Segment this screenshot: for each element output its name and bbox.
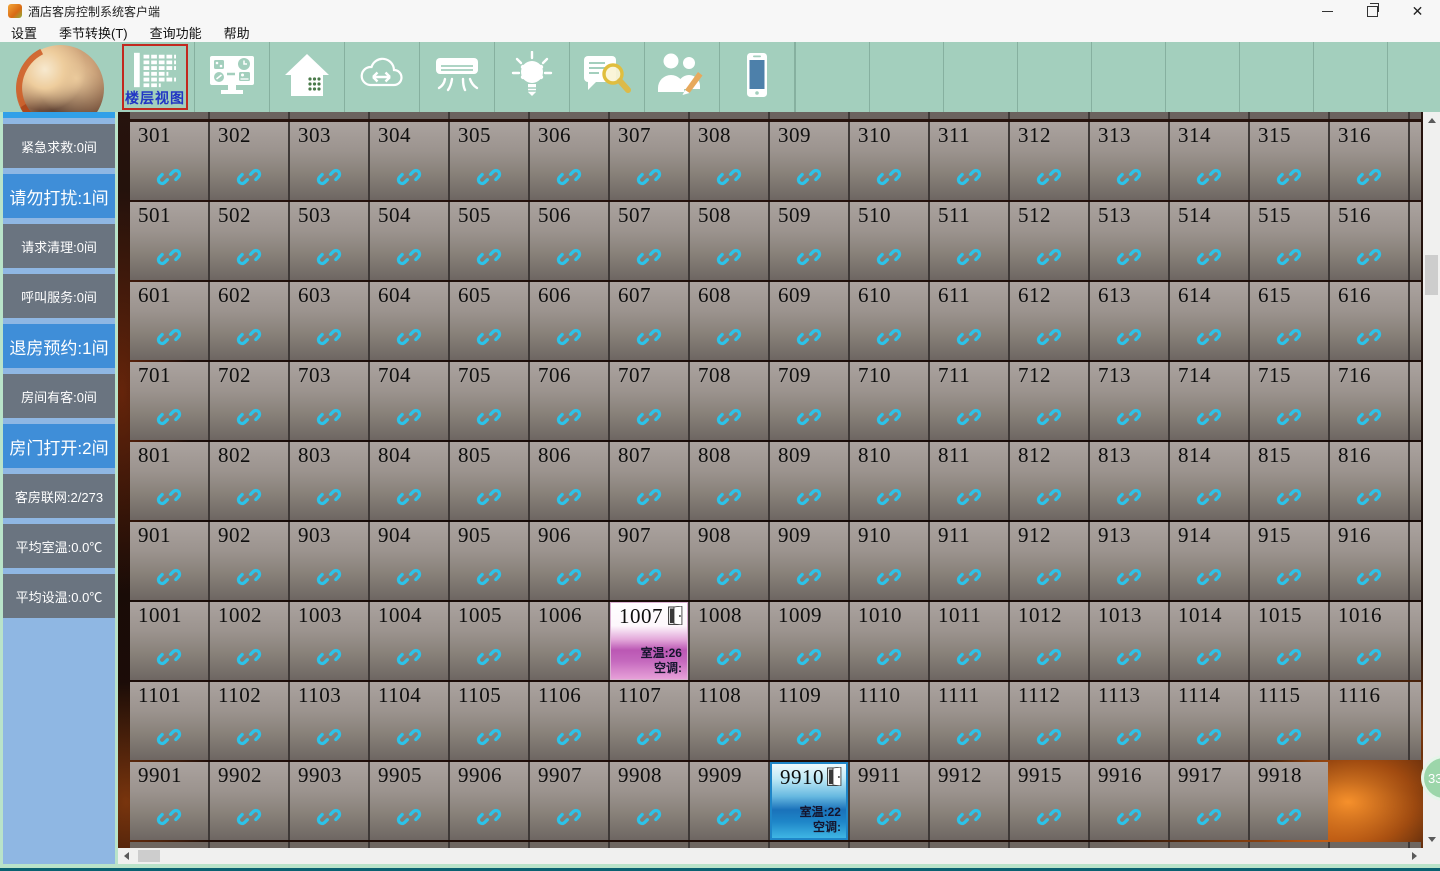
room-temp-label: 室温:26 [641,646,682,661]
room-cell[interactable]: 815 [1250,442,1328,520]
room-cell[interactable]: 512 [1010,202,1088,280]
room-number: 510 [858,203,891,228]
restore-button[interactable] [1350,0,1395,22]
vertical-scrollbar[interactable] [1423,112,1440,848]
room-cell[interactable]: 313 [1090,122,1168,200]
room-cell[interactable]: 502 [210,202,288,280]
room-cell[interactable]: 808 [690,442,768,520]
room-cell[interactable]: 701 [130,362,208,440]
room-number: 802 [218,443,251,468]
room-cell[interactable]: 802 [210,442,288,520]
sidebar-status-item[interactable]: 请求清理:0间 [3,224,115,268]
sidebar-status-item[interactable]: 房间有客:0间 [3,374,115,418]
room-cell[interactable]: 913 [1090,522,1168,600]
room-cell[interactable]: 915 [1250,522,1328,600]
room-number: 9901 [138,763,182,788]
room-cell[interactable]: 9906 [450,762,528,840]
toolbar-button-floor-view[interactable]: 楼层视图 [120,42,195,112]
room-cell[interactable]: 9910室温:22空调: [770,762,848,840]
room-cell[interactable]: 705 [450,362,528,440]
link-icon [236,564,262,590]
link-icon [556,804,582,830]
link-icon [236,644,262,670]
room-cell[interactable]: 714 [1170,362,1248,440]
room-cell[interactable]: 507 [610,202,688,280]
toolbar-button-staff[interactable] [645,42,720,112]
link-icon [396,804,422,830]
room-cell[interactable]: 1116 [1330,682,1408,760]
room-cell[interactable]: 610 [850,282,928,360]
room-cell[interactable]: 302 [210,122,288,200]
room-cell[interactable]: 316 [1330,122,1408,200]
room-cell[interactable]: 607 [610,282,688,360]
room-cell[interactable]: 811 [930,442,1008,520]
link-icon [1276,644,1302,670]
room-cell[interactable]: 514 [1170,202,1248,280]
room-cell[interactable]: 9902 [210,762,288,840]
app-window: 酒店客房控制系统客户端 ✕ 设置季节转换(T)查询功能帮助 [0,0,1440,871]
room-number: 1102 [218,683,261,708]
room-cell[interactable]: 301 [130,122,208,200]
room-cell[interactable]: 803 [290,442,368,520]
room-cell[interactable]: 914 [1170,522,1248,600]
link-icon [396,164,422,190]
room-cell[interactable]: 916 [1330,522,1408,600]
link-icon [1276,164,1302,190]
toolbar-button-air-conditioner[interactable] [420,42,495,112]
link-icon [156,164,182,190]
room-cell-partial [1410,362,1421,440]
room-number: 702 [218,363,251,388]
room-cell[interactable]: 906 [530,522,608,600]
room-number: 1108 [698,683,741,708]
room-cell[interactable]: 1006 [530,602,608,680]
room-cell[interactable]: 904 [370,522,448,600]
link-icon [396,484,422,510]
link-icon [1276,804,1302,830]
room-number: 1004 [378,603,422,628]
room-cell[interactable]: 504 [370,202,448,280]
horizontal-scroll-thumb[interactable] [138,850,160,862]
room-number: 303 [298,123,331,148]
scroll-down-arrow[interactable] [1423,831,1440,848]
room-cell[interactable]: 813 [1090,442,1168,520]
room-cell[interactable]: 710 [850,362,928,440]
room-number: 9903 [298,763,342,788]
room-cell[interactable]: 912 [1010,522,1088,600]
grid-top-sliver-row [130,112,1421,119]
room-cell-sliver [210,112,288,119]
room-number: 9912 [938,763,982,788]
scroll-right-arrow[interactable] [1406,848,1423,864]
link-icon [1036,724,1062,750]
room-cell[interactable]: 1115 [1250,682,1328,760]
link-icon [1356,324,1382,350]
room-cell[interactable]: 702 [210,362,288,440]
room-cell[interactable]: 704 [370,362,448,440]
room-ac-label: 空调: [800,820,841,835]
room-cell[interactable]: 1113 [1090,682,1168,760]
room-cell[interactable]: 807 [610,442,688,520]
close-button[interactable]: ✕ [1395,0,1440,22]
link-icon [156,724,182,750]
room-number: 505 [458,203,491,228]
room-cell[interactable]: 508 [690,202,768,280]
link-icon [236,244,262,270]
sidebar-status-item[interactable]: 紧急求救:0间 [3,124,115,168]
room-cell[interactable]: 1004 [370,602,448,680]
room-cell[interactable]: 503 [290,202,368,280]
room-cell[interactable]: 611 [930,282,1008,360]
sidebar-status-item[interactable]: 退房预约:1间 [3,324,115,368]
room-cell[interactable]: 305 [450,122,528,200]
restore-icon [1367,6,1378,17]
room-number: 813 [1098,443,1131,468]
toolbar-button-query[interactable] [570,42,645,112]
room-cell[interactable]: 810 [850,442,928,520]
room-cell[interactable]: 515 [1250,202,1328,280]
room-number: 9910 [780,765,824,790]
room-number: 1113 [1098,683,1140,708]
room-cell[interactable]: 1101 [130,682,208,760]
room-cell-sliver [130,112,208,119]
room-cell[interactable]: 505 [450,202,528,280]
room-cell[interactable]: 901 [130,522,208,600]
room-cell[interactable]: 809 [770,442,848,520]
sidebar-status-item[interactable]: 平均设温:0.0℃ [3,574,115,618]
message-search-icon [582,52,632,103]
room-cell[interactable]: 616 [1330,282,1408,360]
room-number: 507 [618,203,651,228]
room-number: 9918 [1258,763,1302,788]
room-number: 603 [298,283,331,308]
room-cell[interactable]: 712 [1010,362,1088,440]
room-cell[interactable]: 9908 [610,762,688,840]
room-cell[interactable]: 1107 [610,682,688,760]
link-icon [716,324,742,350]
room-cell[interactable]: 1003 [290,602,368,680]
sidebar-status-item[interactable]: 房门打开:2间 [3,424,115,468]
link-icon [316,324,342,350]
room-cell[interactable]: 615 [1250,282,1328,360]
room-cell[interactable]: 608 [690,282,768,360]
room-number: 1114 [1178,683,1220,708]
room-number: 912 [1018,523,1051,548]
room-cell[interactable]: 1111 [930,682,1008,760]
sidebar-status-item[interactable]: 呼叫服务:0间 [3,274,115,318]
room-cell[interactable]: 613 [1090,282,1168,360]
room-cell[interactable]: 706 [530,362,608,440]
room-number: 606 [538,283,571,308]
link-icon [1356,644,1382,670]
room-number: 1106 [538,683,581,708]
link-icon [316,484,342,510]
app-icon [8,4,22,18]
horizontal-scrollbar[interactable] [118,848,1423,864]
room-number: 812 [1018,443,1051,468]
room-cell[interactable]: 707 [610,362,688,440]
room-cell[interactable]: 1001 [130,602,208,680]
room-cell[interactable]: 9911 [850,762,928,840]
room-number: 806 [538,443,571,468]
floor-view-label: 楼层视图 [124,88,186,108]
room-cell[interactable]: 1106 [530,682,608,760]
room-cell[interactable]: 1109 [770,682,848,760]
room-cell[interactable]: 612 [1010,282,1088,360]
room-number: 701 [138,363,171,388]
room-cell[interactable]: 1016 [1330,602,1408,680]
room-cell[interactable]: 310 [850,122,928,200]
room-cell[interactable]: 907 [610,522,688,600]
room-cell[interactable]: 1008 [690,602,768,680]
room-cell[interactable]: 1104 [370,682,448,760]
room-number: 915 [1258,523,1291,548]
room-number: 1010 [858,603,902,628]
room-cell[interactable]: 1114 [1170,682,1248,760]
room-number: 803 [298,443,331,468]
sidebar-status-item[interactable]: 平均室温:0.0℃ [3,524,115,568]
link-icon [236,724,262,750]
room-cell-sliver [610,112,688,119]
link-icon [1196,324,1222,350]
room-cell[interactable]: 516 [1330,202,1408,280]
room-row: 3013023033043053063073083093103113123133… [130,122,1421,200]
room-cell[interactable]: 510 [850,202,928,280]
room-cell[interactable]: 709 [770,362,848,440]
room-cell[interactable]: 9917 [1170,762,1248,840]
room-cell[interactable]: 804 [370,442,448,520]
room-cell[interactable]: 903 [290,522,368,600]
link-icon [1356,164,1382,190]
menu-item-帮助[interactable]: 帮助 [213,22,261,42]
link-icon [1356,484,1382,510]
room-cell[interactable]: 1110 [850,682,928,760]
room-cell[interactable]: 509 [770,202,848,280]
room-cell[interactable]: 309 [770,122,848,200]
link-icon [1036,484,1062,510]
room-number: 9909 [698,763,742,788]
room-number: 508 [698,203,731,228]
room-cell[interactable]: 715 [1250,362,1328,440]
room-number: 504 [378,203,411,228]
room-cell-partial [1410,522,1421,600]
room-cell[interactable]: 311 [930,122,1008,200]
room-cell[interactable]: 902 [210,522,288,600]
room-cell[interactable]: 606 [530,282,608,360]
room-grid-area: 3013023033043053063073083093103113123133… [118,112,1423,848]
room-cell[interactable]: 513 [1090,202,1168,280]
room-number: 1003 [298,603,342,628]
room-cell[interactable]: 9907 [530,762,608,840]
room-cell[interactable]: 713 [1090,362,1168,440]
menu-item-季节转换(T)[interactable]: 季节转换(T) [48,22,139,42]
link-icon [636,484,662,510]
room-number: 801 [138,443,171,468]
link-icon [956,244,982,270]
room-number: 1013 [1098,603,1142,628]
room-cell[interactable]: 1102 [210,682,288,760]
link-icon [876,564,902,590]
link-icon [316,804,342,830]
room-cell[interactable]: 708 [690,362,768,440]
room-number: 503 [298,203,331,228]
room-cell[interactable]: 304 [370,122,448,200]
room-number: 9905 [378,763,422,788]
toolbar-button-light[interactable] [495,42,570,112]
room-cell[interactable]: 1015 [1250,602,1328,680]
toolbar-button-cloud-sync[interactable] [345,42,420,112]
room-cell[interactable]: 806 [530,442,608,520]
room-cell[interactable]: 308 [690,122,768,200]
room-cell[interactable]: 911 [930,522,1008,600]
room-cell[interactable]: 9909 [690,762,768,840]
room-cell[interactable]: 303 [290,122,368,200]
room-number: 1005 [458,603,502,628]
status-sidebar: 紧急求救:0间请勿打扰:1间请求清理:0间呼叫服务:0间退房预约:1间房间有客:… [0,112,118,864]
room-cell-sliver [1090,112,1168,119]
room-cell[interactable]: 1005 [450,602,528,680]
room-number: 1103 [298,683,341,708]
room-cell[interactable]: 307 [610,122,688,200]
menu-item-设置[interactable]: 设置 [0,22,48,42]
room-number: 804 [378,443,411,468]
room-cell[interactable]: 1007室温:26空调: [610,602,688,680]
room-cell[interactable]: 315 [1250,122,1328,200]
room-cell[interactable]: 603 [290,282,368,360]
link-icon [1196,644,1222,670]
room-number: 808 [698,443,731,468]
room-cell[interactable]: 1105 [450,682,528,760]
room-number: 313 [1098,123,1131,148]
sidebar-status-item[interactable]: 请勿打扰:1间 [3,174,115,218]
room-cell[interactable]: 908 [690,522,768,600]
room-cell-sliver [930,112,1008,119]
room-number: 714 [1178,363,1211,388]
room-cell[interactable]: 9901 [130,762,208,840]
room-number: 613 [1098,283,1131,308]
link-icon [236,324,262,350]
room-number: 612 [1018,283,1051,308]
room-cell[interactable]: 604 [370,282,448,360]
room-number: 703 [298,363,331,388]
room-cell[interactable]: 1009 [770,602,848,680]
room-cell[interactable]: 9916 [1090,762,1168,840]
room-cell[interactable]: 1014 [1170,602,1248,680]
room-number: 9908 [618,763,662,788]
room-cell[interactable]: 605 [450,282,528,360]
room-cell[interactable]: 9905 [370,762,448,840]
link-icon [556,644,582,670]
toolbar-button-monitor-settings[interactable] [195,42,270,112]
room-cell[interactable]: 1011 [930,602,1008,680]
room-number: 816 [1338,443,1371,468]
toolbar-button-mobile[interactable] [720,42,795,112]
room-cell[interactable]: 910 [850,522,928,600]
room-cell[interactable]: 1002 [210,602,288,680]
link-icon [796,484,822,510]
room-number: 316 [1338,123,1371,148]
room-cell[interactable]: 314 [1170,122,1248,200]
room-number: 315 [1258,123,1291,148]
link-icon [236,164,262,190]
room-cell[interactable]: 909 [770,522,848,600]
room-cell[interactable]: 9918 [1250,762,1328,840]
menu-bar: 设置季节转换(T)查询功能帮助 [0,22,1440,42]
toolbar-button-house-rooms[interactable] [270,42,345,112]
room-cell[interactable]: 814 [1170,442,1248,520]
room-cell[interactable]: 1013 [1090,602,1168,680]
room-cell-partial [1410,282,1421,360]
room-number: 607 [618,283,651,308]
room-number: 602 [218,283,251,308]
house-rooms-icon [283,52,331,103]
scroll-left-arrow[interactable] [118,848,135,864]
room-number: 314 [1178,123,1211,148]
room-number: 908 [698,523,731,548]
link-icon [316,564,342,590]
room-cell[interactable]: 703 [290,362,368,440]
open-door-icon [668,606,683,625]
sidebar-status-item[interactable]: 客房联网:2/273 [3,474,115,518]
room-cell[interactable]: 614 [1170,282,1248,360]
room-cell[interactable]: 9915 [1010,762,1088,840]
room-row: 7017027037047057067077087097107117127137… [130,362,1421,440]
room-number: 902 [218,523,251,548]
room-cell-sliver [530,112,608,119]
room-number: 913 [1098,523,1131,548]
room-cell[interactable]: 1112 [1010,682,1088,760]
room-cell[interactable]: 1103 [290,682,368,760]
room-number: 905 [458,523,491,548]
room-cell[interactable]: 1108 [690,682,768,760]
room-number: 1001 [138,603,182,628]
room-number: 901 [138,523,171,548]
minimize-button[interactable] [1305,0,1350,22]
room-cell[interactable]: 511 [930,202,1008,280]
room-cell[interactable]: 306 [530,122,608,200]
vertical-scroll-thumb[interactable] [1425,255,1438,295]
room-cell[interactable]: 9903 [290,762,368,840]
menu-item-查询功能[interactable]: 查询功能 [139,22,213,42]
room-number: 711 [938,363,970,388]
room-cell[interactable]: 711 [930,362,1008,440]
room-row: 9019029039049059069079089099109119129139… [130,522,1421,600]
room-cell[interactable]: 716 [1330,362,1408,440]
scroll-up-arrow[interactable] [1423,112,1440,129]
room-cell[interactable]: 602 [210,282,288,360]
room-number: 616 [1338,283,1371,308]
room-cell[interactable]: 601 [130,282,208,360]
open-door-icon [827,767,842,786]
room-cell[interactable]: 609 [770,282,848,360]
room-cell[interactable]: 812 [1010,442,1088,520]
room-cell[interactable]: 501 [130,202,208,280]
room-cell[interactable]: 805 [450,442,528,520]
room-cell[interactable]: 312 [1010,122,1088,200]
room-cell[interactable]: 905 [450,522,528,600]
link-icon [1116,804,1142,830]
room-cell[interactable]: 816 [1330,442,1408,520]
room-number: 9917 [1178,763,1222,788]
room-cell[interactable]: 1010 [850,602,928,680]
room-cell[interactable]: 9912 [930,762,1008,840]
room-cell[interactable]: 1012 [1010,602,1088,680]
room-cell[interactable]: 506 [530,202,608,280]
room-cell[interactable]: 801 [130,442,208,520]
room-number: 308 [698,123,731,148]
link-icon [476,404,502,430]
room-cell-partial [1410,602,1421,680]
